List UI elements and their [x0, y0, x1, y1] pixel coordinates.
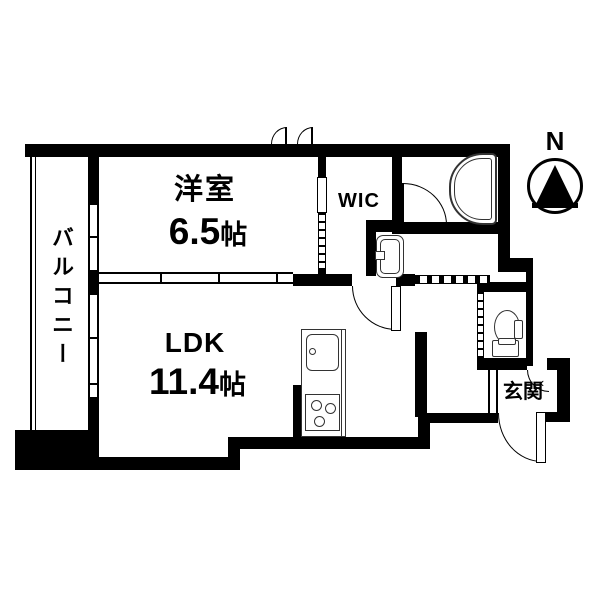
- washroom-sliding-door: [415, 275, 490, 284]
- balcony-window-1: [88, 205, 99, 270]
- room-label-ldk: LDK: [130, 329, 260, 357]
- room-label-entrance: 玄関: [499, 382, 547, 402]
- ldk-size-unit: 帖: [219, 370, 246, 400]
- floor-plan: ‹ N 洋室 6.5帖 LDK 11.4帖 WIC 玄関 バルコニー: [0, 0, 600, 600]
- burner-3: [314, 416, 325, 427]
- wall-bottom-2: [240, 437, 430, 449]
- entrance-step-line-2: [496, 370, 498, 413]
- burner-2: [325, 403, 336, 414]
- wall-entrance-top-a: [477, 358, 527, 370]
- wall-balcony-divider-a: [88, 157, 99, 205]
- kitchen-counter-edge: [341, 329, 342, 437]
- wall-top: [25, 144, 510, 157]
- north-arrow-base: [532, 203, 578, 208]
- toilet-seat: [498, 338, 516, 345]
- burner-1: [311, 400, 322, 411]
- wall-toilet-left-bottom: [477, 355, 484, 370]
- wall-entrance-top-b: [547, 358, 557, 370]
- toilet-door: [477, 292, 484, 356]
- balcony-window-2: [88, 295, 99, 397]
- wall-a-left: [293, 274, 352, 286]
- room-size-western: 6.5帖: [118, 213, 298, 250]
- washroom-door-leaf: [391, 286, 401, 331]
- wall-entrance-right: [557, 358, 570, 422]
- room-label-western: 洋室: [130, 176, 280, 205]
- bath-door-arc: [403, 183, 447, 225]
- room-label-balcony: バルコニー: [42, 226, 72, 436]
- wall-wic-divider-top: [318, 157, 326, 178]
- ldk-size-value: 11.4: [149, 361, 219, 402]
- western-size-value: 6.5: [169, 211, 220, 252]
- bath-door-leaf: [402, 183, 404, 226]
- entrance-step-line-1: [488, 370, 490, 413]
- compass-north-label: N: [540, 128, 570, 154]
- wall-bottom-3: [418, 413, 498, 423]
- wall-balcony-divider-c: [88, 397, 99, 432]
- toilet-side-box: [514, 320, 523, 339]
- wall-bath-right: [498, 144, 510, 272]
- north-arrow-icon: [535, 165, 575, 206]
- sliding-partition: [99, 272, 293, 284]
- western-size-unit: 帖: [220, 220, 247, 250]
- wall-hall-left: [415, 332, 427, 417]
- washbasin-tap: [375, 251, 385, 260]
- vent-window-2: [297, 127, 313, 144]
- wall-wic-bath-divider: [392, 148, 402, 232]
- room-size-ldk: 11.4帖: [105, 363, 290, 400]
- washroom-door-arc: [352, 286, 396, 330]
- entrance-door-leaf: [536, 412, 546, 463]
- kitchen-faucet: [309, 348, 316, 355]
- balcony-railing: [30, 157, 36, 430]
- room-label-wic: WIC: [324, 191, 394, 211]
- wall-step-1: [228, 437, 240, 470]
- wall-bottom-1: [95, 457, 240, 470]
- wall-bottom-left-block: [15, 430, 99, 470]
- wic-folding-door: [318, 213, 326, 268]
- wall-balcony-divider-b: [88, 270, 99, 295]
- wall-toilet-right: [526, 260, 533, 366]
- vent-window-1: [271, 127, 287, 144]
